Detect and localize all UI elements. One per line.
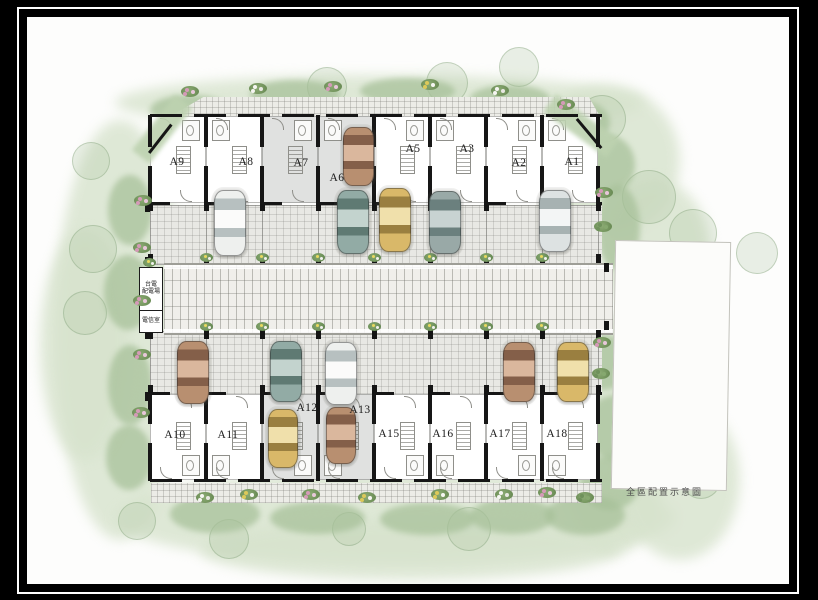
shrub-clump <box>106 425 152 490</box>
flower-cluster <box>557 99 575 110</box>
party-wall <box>540 115 544 147</box>
unit-label-A7: A7 <box>293 157 308 169</box>
party-wall <box>204 443 208 481</box>
lane-planter <box>200 253 213 262</box>
bathroom <box>182 120 200 141</box>
wall-pier <box>604 321 609 330</box>
wall-pier <box>596 254 601 263</box>
party-wall <box>596 394 600 424</box>
wall-pier <box>428 330 433 339</box>
party-wall <box>540 443 544 481</box>
lane-planter <box>536 253 549 262</box>
flower-cluster <box>491 85 509 96</box>
party-wall <box>372 443 376 481</box>
unit-label-A16: A16 <box>432 428 453 440</box>
unit-label-A3: A3 <box>459 143 474 155</box>
flower-cluster <box>302 489 320 500</box>
party-wall <box>428 394 432 424</box>
bathroom <box>406 120 424 141</box>
flower-cluster <box>196 492 214 503</box>
unit-label-A18: A18 <box>546 428 567 440</box>
lane-planter <box>424 253 437 262</box>
unit-label-A17: A17 <box>489 428 510 440</box>
flower-cluster <box>324 81 342 92</box>
unit-label-A1: A1 <box>564 156 579 168</box>
party-wall <box>204 166 208 204</box>
car-white-A13 <box>325 342 357 405</box>
driveway-divider <box>430 333 431 388</box>
staircase <box>512 422 527 450</box>
lane-planter <box>424 322 437 331</box>
party-wall <box>372 394 376 424</box>
exterior-wall <box>150 479 602 482</box>
rear-yard-strip-bottom <box>151 483 602 503</box>
car-teal-A6 <box>337 190 369 254</box>
car-silver-A1 <box>539 190 571 252</box>
shrub-clump <box>470 498 555 534</box>
lane-planter <box>480 253 493 262</box>
adjacent-lot <box>611 240 731 491</box>
driveway-divider <box>542 333 543 388</box>
site-plan: 台電 配電場 電信室 全區配置示意圖 A9A8A7A6A5A3A2A1A10A1… <box>19 9 797 592</box>
flower-cluster <box>249 83 267 94</box>
lane-planter <box>368 253 381 262</box>
car-sage-A3 <box>429 191 461 254</box>
flower-cluster <box>592 368 610 379</box>
unit-label-A12: A12 <box>296 402 317 414</box>
driveway-divider <box>318 333 319 388</box>
lane-planter <box>200 322 213 331</box>
lane-planter <box>143 258 156 267</box>
flower-cluster <box>133 295 151 306</box>
tree-circle <box>63 291 107 335</box>
paper-canvas: 台電 配電場 電信室 全區配置示意圖 A9A8A7A6A5A3A2A1A10A1… <box>19 9 797 592</box>
party-wall <box>204 115 208 147</box>
lane-planter <box>480 322 493 331</box>
flower-cluster <box>181 86 199 97</box>
unit-label-A5: A5 <box>405 143 420 155</box>
unit-label-A15: A15 <box>378 428 399 440</box>
flower-cluster <box>595 187 613 198</box>
party-wall <box>428 115 432 147</box>
flower-cluster <box>538 487 556 498</box>
flower-cluster <box>134 195 152 206</box>
lane-planter <box>368 322 381 331</box>
unit-label-A10: A10 <box>164 429 185 441</box>
bathroom <box>518 455 536 476</box>
wall-pier <box>316 330 321 339</box>
party-wall <box>596 443 600 481</box>
shrub-clump <box>270 502 365 534</box>
tree-circle <box>118 502 156 540</box>
wall-pier <box>540 330 545 339</box>
unit-label-A9: A9 <box>169 156 184 168</box>
lane-planter <box>312 253 325 262</box>
party-wall <box>260 394 264 424</box>
bathroom <box>518 120 536 141</box>
flower-cluster <box>495 489 513 500</box>
staircase <box>568 422 583 450</box>
staircase <box>400 422 415 450</box>
driveway-divider <box>150 333 151 388</box>
party-wall <box>484 394 488 424</box>
driveway-divider <box>598 207 599 260</box>
party-wall <box>148 115 152 147</box>
party-wall <box>316 115 320 147</box>
party-wall <box>260 166 264 204</box>
staircase <box>456 422 471 450</box>
wall-pier <box>484 330 489 339</box>
party-wall <box>260 115 264 147</box>
driveway-divider <box>374 333 375 388</box>
lane-planter <box>256 253 269 262</box>
shrub-clump <box>380 503 475 535</box>
wall-pier <box>372 330 377 339</box>
lane-planter <box>536 322 549 331</box>
car-teal-A12 <box>270 341 302 402</box>
picture-frame: 台電 配電場 電信室 全區配置示意圖 A9A8A7A6A5A3A2A1A10A1… <box>17 7 799 594</box>
car-gold-A18 <box>557 342 589 402</box>
wall-pier <box>604 263 609 272</box>
car-gold-A12 <box>268 409 298 468</box>
car-white-A8 <box>214 190 246 256</box>
wall-pier <box>204 330 209 339</box>
party-wall <box>316 166 320 204</box>
bathroom <box>182 455 200 476</box>
driveway-divider <box>262 333 263 388</box>
bathroom <box>294 120 312 141</box>
party-wall <box>316 443 320 481</box>
unit-label-A2: A2 <box>511 157 526 169</box>
flower-cluster <box>133 242 151 253</box>
party-wall <box>484 115 488 147</box>
party-wall <box>596 166 600 204</box>
flower-cluster <box>132 407 150 418</box>
unit-label-A6: A6 <box>329 172 344 184</box>
party-wall <box>260 443 264 481</box>
tree-circle <box>499 47 539 87</box>
flower-cluster <box>421 79 439 90</box>
car-gold-A5 <box>379 188 411 252</box>
flower-cluster <box>594 221 612 232</box>
lane-planter <box>312 322 325 331</box>
framed-site-plan: { "figure": { "caption": "全區配置示意圖", "fra… <box>0 0 818 600</box>
flower-cluster <box>240 489 258 500</box>
party-wall <box>484 166 488 204</box>
flower-cluster <box>431 489 449 500</box>
exterior-wall <box>150 114 602 117</box>
tree-circle <box>736 232 778 274</box>
tree-circle <box>72 142 110 180</box>
telecom-room-box: 電信室 <box>139 310 163 333</box>
flower-cluster <box>358 492 376 503</box>
party-wall <box>484 443 488 481</box>
flower-cluster <box>576 492 594 503</box>
car-brown-A17 <box>503 342 535 402</box>
car-brown-A10 <box>177 341 209 404</box>
flower-cluster <box>593 337 611 348</box>
unit-label-A11: A11 <box>218 429 239 441</box>
party-wall <box>540 394 544 424</box>
car-brown-A6 <box>343 127 374 186</box>
plan-caption: 全區配置示意圖 <box>626 485 703 498</box>
party-wall <box>148 443 152 481</box>
unit-label-A13: A13 <box>349 404 370 416</box>
unit-label-A8: A8 <box>238 156 253 168</box>
bathroom <box>406 455 424 476</box>
lane-planter <box>256 322 269 331</box>
party-wall <box>428 443 432 481</box>
wall-pier <box>260 330 265 339</box>
driveway-divider <box>150 207 151 260</box>
driveway-divider <box>486 333 487 388</box>
flower-cluster <box>133 349 151 360</box>
